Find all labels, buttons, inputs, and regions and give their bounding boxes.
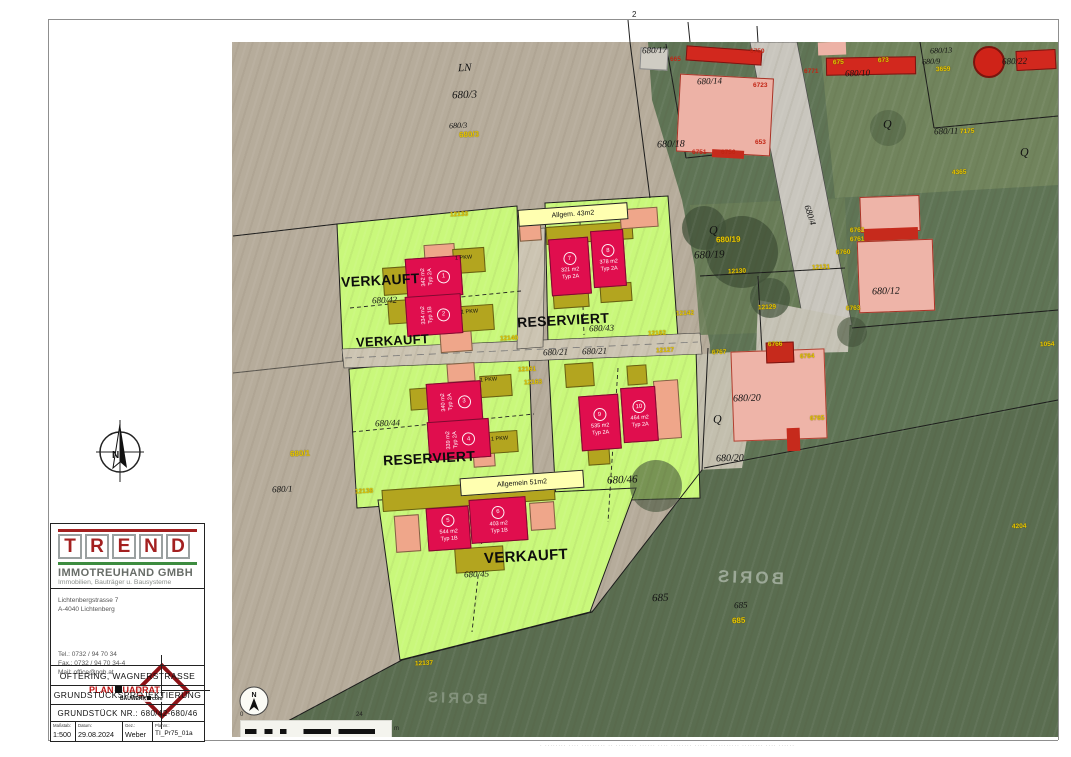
building-2: 334 m2Typ 1B 2 xyxy=(405,293,464,337)
trend-letter: E xyxy=(112,534,136,559)
landuse-label: LN xyxy=(458,62,472,74)
trend-letters: TREND xyxy=(58,534,190,559)
plannr-label: Plannr.: xyxy=(155,723,170,728)
cad-parcel-yellow: 685 xyxy=(732,616,746,625)
building-text: 535 m2Typ 2A xyxy=(591,423,610,437)
cad-point-red: 6750 xyxy=(750,48,764,55)
parcel-label: 680/21 xyxy=(543,347,568,358)
plannr-value: TI_Pr75_01a xyxy=(155,730,193,737)
compass-needle-left xyxy=(113,424,120,468)
parcel-label: 680/21 xyxy=(582,346,607,357)
cad-point: 6767 xyxy=(712,349,727,357)
parcel-label: 680/12 xyxy=(872,286,900,298)
cad-point: 7175 xyxy=(960,128,975,136)
project-type: GRUNDSTÜCKSPROJEKTIERUNG xyxy=(51,686,204,704)
cad-point-red: 6756 xyxy=(721,149,735,156)
trend-logo: TREND IMMOTREUHAND GMBH Immobilien, Baut… xyxy=(51,524,204,588)
margin-boundary-ticks xyxy=(0,0,1071,42)
copyright-fineprint: · ········ ···· ········· ·· ········ ··… xyxy=(540,743,960,749)
date-label: Datum: xyxy=(78,723,92,728)
building-number: 9 xyxy=(593,408,607,422)
parcel-label: 680/19 xyxy=(694,248,725,261)
cad-point: 3659 xyxy=(936,66,951,74)
usage-letter: Q xyxy=(713,412,722,427)
plan-sheet: 2 xyxy=(0,0,1071,757)
compass-needle-right xyxy=(120,424,127,468)
building-number: 10 xyxy=(632,400,646,414)
project-row: OFTERING, WAGNERSTRASSE xyxy=(51,665,204,685)
cad-point: 6763 xyxy=(846,305,861,313)
parking-label: 1 PKW xyxy=(491,435,509,442)
cad-point: 6764 xyxy=(800,353,815,361)
building-9: 9 535 m2Typ 2A xyxy=(578,394,622,452)
cad-point: 6765 xyxy=(810,415,825,423)
company-name: IMMOTREUHAND GMBH xyxy=(58,567,193,579)
building-3: 340 m2Typ 2A 3 xyxy=(426,380,484,424)
cad-point: 12127 xyxy=(656,347,674,355)
tree xyxy=(750,278,790,318)
drawn-label: Gez.: xyxy=(125,723,135,728)
cad-point: 12161 xyxy=(518,366,536,374)
building-text: 403 m2Typ 1B xyxy=(489,520,508,534)
building-number: 2 xyxy=(437,307,451,321)
cad-point: 4204 xyxy=(1012,523,1027,531)
cad-point-red: 653 xyxy=(755,139,766,146)
trend-green-rule xyxy=(58,562,197,565)
cad-point: 12163 xyxy=(524,379,542,387)
boris-watermark: BORIS xyxy=(715,567,784,589)
parcel-label: 680/46 xyxy=(607,473,638,486)
parcel-label: 680/14 xyxy=(697,76,722,87)
cad-point-red: 665 xyxy=(670,56,681,63)
date-value: 29.08.2024 xyxy=(78,730,114,739)
parcel-label: 680/22 xyxy=(1002,56,1027,67)
parcel-label: 685 xyxy=(734,600,748,610)
cad-point: 12142 xyxy=(676,310,694,318)
scale-label: Maßstab: xyxy=(53,723,71,728)
garage-chip xyxy=(529,501,556,531)
boris-watermark: BORIS xyxy=(425,689,488,708)
cad-point: 1054 xyxy=(1040,341,1055,349)
parcel-label: 680/20 xyxy=(733,393,761,405)
drawn-value: Weber xyxy=(125,730,146,739)
parking-label: 1 PKW xyxy=(480,376,498,383)
building-text: 339 m2Typ 2A xyxy=(445,430,459,449)
parcel-label: 680/44 xyxy=(375,418,400,429)
building-6: 6 403 m2Typ 1B xyxy=(469,496,529,544)
round-structure xyxy=(973,46,1005,78)
scale-bar xyxy=(240,720,392,737)
usage-letter: Q xyxy=(1020,145,1029,160)
parcel-label: 680/3 xyxy=(452,89,477,102)
cad-point: 12130 xyxy=(728,268,746,276)
project-title: OFTERING, WAGNERSTRASSE xyxy=(51,666,204,685)
scale-cell: Maßstab: 1:500 xyxy=(51,722,76,741)
scale-unit: m xyxy=(394,726,399,732)
frame-right xyxy=(1058,19,1059,740)
building-text: 334 m2Typ 1B xyxy=(420,306,434,325)
plannr-cell: Plannr.: TI_Pr75_01a xyxy=(153,722,202,741)
existing-roof-salmon xyxy=(818,42,846,55)
type-row: GRUNDSTÜCKSPROJEKTIERUNG xyxy=(51,685,204,704)
cad-point: 6760 xyxy=(836,249,851,257)
building-text: 342 m2Typ 2A xyxy=(420,268,434,287)
tree xyxy=(630,460,682,512)
parcel-label: 680/18 xyxy=(657,139,685,151)
building-number: 6 xyxy=(491,505,505,519)
parcel-numbers: GRUNDSTÜCK NR.: 680/42-680/46 xyxy=(51,705,204,721)
building-7: 7 321 m2Typ 2A xyxy=(548,237,592,297)
building-number: 8 xyxy=(601,244,615,258)
compass-letter: N xyxy=(112,450,119,461)
trend-letter: N xyxy=(139,534,163,559)
parking-label: 1 PKW xyxy=(461,308,479,315)
frame-left xyxy=(48,19,49,740)
title-block: TREND IMMOTREUHAND GMBH Immobilien, Baut… xyxy=(50,523,205,742)
parcel-label: 680/20 xyxy=(716,453,744,465)
building-10: 10 464 m2Typ 2A xyxy=(620,386,659,443)
scale-end: 24 xyxy=(356,712,363,718)
building-number: 5 xyxy=(441,514,455,528)
cad-point: 6761 xyxy=(850,236,865,244)
usage-letter: Q xyxy=(883,117,892,132)
address: Lichtenbergstrasse 7 A-4040 Lichtenberg xyxy=(58,597,118,615)
building-5: 5 544 m2Typ 1B xyxy=(426,506,472,552)
compass-rose: N xyxy=(92,416,148,486)
address-line2: A-4040 Lichtenberg xyxy=(58,606,118,615)
cad-parcel-yellow: 680/19 xyxy=(716,235,741,245)
building-number: 7 xyxy=(563,252,577,266)
cad-point-red: 6723 xyxy=(753,82,767,89)
meta-row: Maßstab: 1:500 Datum: 29.08.2024 Gez.: W… xyxy=(51,721,204,741)
cad-parcel-yellow: 680/1 xyxy=(290,449,310,459)
house-680-12-main xyxy=(857,239,935,314)
building-text: 544 m2Typ 1B xyxy=(439,529,458,543)
parcel-label: 680/45 xyxy=(464,569,489,580)
cad-point: 6766 xyxy=(768,341,783,349)
cad-point: 6762 xyxy=(850,227,865,235)
cad-point: 12131 xyxy=(812,264,830,272)
trend-red-rule xyxy=(58,529,197,532)
cad-point: 12162 xyxy=(648,330,666,338)
building-text: 340 m2Typ 2A xyxy=(440,393,454,412)
margin-parcel-glyph: 2 xyxy=(632,10,636,19)
address-line1: Lichtenbergstrasse 7 xyxy=(58,597,118,606)
date-cell: Datum: 29.08.2024 xyxy=(76,722,123,741)
parcel-label: 680/3 xyxy=(449,121,468,131)
scale-zero: 0 xyxy=(240,712,243,718)
building-number: 3 xyxy=(457,394,471,408)
cad-point: 12140 xyxy=(500,335,518,343)
building-8: 8 378 m2Typ 2A xyxy=(590,229,627,288)
terrace-chip xyxy=(626,364,647,385)
parcel-label: 680/10 xyxy=(845,68,870,79)
cad-point: 675 xyxy=(833,59,844,66)
cad-parcel-yellow: 680/3 xyxy=(459,130,479,140)
parcel-label: 685 xyxy=(652,592,669,605)
parcel-label: 680/42 xyxy=(372,295,397,306)
building-number: 4 xyxy=(462,432,476,446)
building-text: 378 m2Typ 2A xyxy=(599,259,618,273)
trend-letter: T xyxy=(58,534,82,559)
aerial-plan-area: Allgem. 43m2 Allgemein 51m2 342 m2Typ 2A… xyxy=(232,42,1058,737)
cad-point: 673 xyxy=(878,57,889,64)
cad-point-red: 6771 xyxy=(804,68,818,75)
scale-bar-segments xyxy=(245,729,375,734)
access-stub xyxy=(517,228,545,349)
parcels-row: GRUNDSTÜCK NR.: 680/42-680/46 xyxy=(51,704,204,721)
cad-point: 12137 xyxy=(415,660,433,668)
scale-value: 1:500 xyxy=(53,730,71,739)
cad-point: 12129 xyxy=(758,304,776,312)
house-680-20-stub xyxy=(787,428,801,451)
garage-chip xyxy=(394,514,422,553)
cad-point: 4365 xyxy=(952,169,967,177)
building-number: 1 xyxy=(437,269,451,283)
parking-label: 1 PKW xyxy=(455,254,473,261)
parcel-label: 680/11 xyxy=(934,126,959,137)
drawn-cell: Gez.: Weber xyxy=(123,722,153,741)
tree xyxy=(837,317,867,347)
cad-point: 12133 xyxy=(450,211,468,219)
cad-point-red: 6751 xyxy=(692,149,706,156)
trend-letter: R xyxy=(85,534,109,559)
north-letter: N xyxy=(251,692,256,699)
company-tagline: Immobilien, Bauträger u. Bausysteme xyxy=(58,579,171,586)
building-text: 321 m2Typ 2A xyxy=(561,267,580,281)
parcel-label: 680/9 xyxy=(922,57,941,67)
cad-point: 12138 xyxy=(355,488,373,496)
tel-line: Tel.: 0732 / 94 70 34 xyxy=(58,651,125,660)
parcel-label: 680/13 xyxy=(930,46,953,56)
building-text: 464 m2Typ 2A xyxy=(630,415,649,429)
trend-letter: D xyxy=(166,534,190,559)
terrace-chip xyxy=(564,362,595,388)
parcel-label: 680/1 xyxy=(272,484,293,495)
parcel-label: 680/17 xyxy=(642,45,667,56)
